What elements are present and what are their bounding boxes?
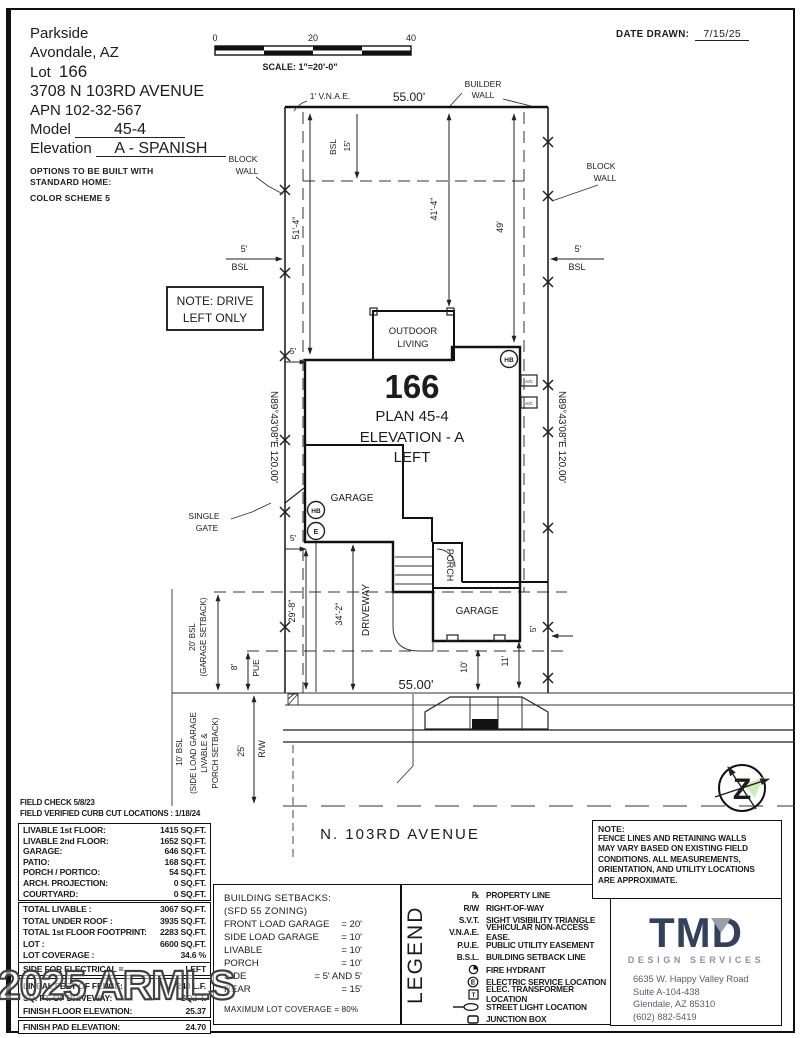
table-row: PORCH / PORTICO:54 SQ.FT. (23, 867, 206, 878)
setback-row: PORCH= 10' (224, 957, 390, 970)
lot-number: 166 (59, 62, 87, 81)
garage-right-label: GARAGE (456, 606, 499, 617)
setback-row: REAR= 15' (224, 983, 390, 996)
drive-note-line2: LEFT ONLY (183, 311, 247, 325)
row-value: 1415 SQ.FT. (160, 825, 206, 836)
table-row: LOT :6600 SQ.FT. (23, 939, 206, 951)
single-gate-label: SINGLE (188, 511, 220, 521)
legend-label: PROPERTY LINE (486, 890, 550, 900)
bsl-5ft-right: 5' (575, 244, 582, 254)
dim-34-2: 34'-2" (334, 603, 344, 626)
row-value: 3067 SQ.FT. (160, 904, 206, 916)
legend-sym: P.U.E. (433, 940, 479, 950)
legend-item: T ELEC. TRANSFORMER LOCATION (433, 988, 608, 1000)
model-value: 45-4 (75, 122, 185, 138)
setback-label: FRONT LOAD GARAGE (224, 918, 329, 931)
row-label: GARAGE: (23, 846, 62, 857)
general-note-box: NOTE: FENCE LINES AND RETAINING WALLS MA… (592, 820, 782, 899)
row-label: LOT COVERAGE : (23, 950, 94, 962)
row-value: 2283 SQ.FT. (160, 927, 206, 939)
fire-hydrant-icon (433, 964, 479, 975)
legend-sym: B.S.L. (433, 952, 479, 962)
row-value: 1652 SQ.FT. (160, 836, 206, 847)
table-row: PATIO:168 SQ.FT. (23, 857, 206, 868)
legend-sym: V.N.A.E. (433, 927, 479, 937)
block-wall-right-label: BLOCK (587, 161, 616, 171)
side-setback-label: LIVABLE & (200, 733, 209, 773)
legend-sym: S.V.T. (433, 915, 479, 925)
building-setbacks-box: BUILDING SETBACKS: (SFD 55 ZONING) FRONT… (213, 884, 401, 1025)
row-label: ARCH. PROJECTION: (23, 878, 108, 889)
date-drawn-label: DATE DRAWN: (616, 29, 689, 40)
table-row: TOTAL 1st FLOOR FOOTPRINT:2283 SQ.FT. (23, 927, 206, 939)
dim-11ft: 11' (500, 655, 510, 666)
row-value: 0 SQ.FT. (174, 889, 206, 900)
dim-49: 49' (495, 221, 505, 233)
driveway-label: DRIVEWAY (361, 584, 372, 637)
transformer-icon: T (433, 989, 479, 1000)
setback-row: LIVABLE= 10' (224, 944, 390, 957)
garage-setback-label: (GARAGE SETBACK) (199, 597, 208, 676)
note-line: ARE APPROXIMATE. (598, 876, 776, 886)
bearing-right: N89°43'08"E 120.00' (556, 391, 567, 483)
dim-10ft: 10' (459, 661, 469, 673)
legend-item: STREET LIGHT LOCATION (433, 1001, 608, 1013)
legend-item: ℞PROPERTY LINE (433, 889, 608, 901)
elevation-label: Elevation (30, 140, 92, 157)
tmd-logo: TMD (649, 913, 743, 953)
legend-label: PUBLIC UTILITY EASEMENT (486, 940, 594, 950)
elevation-name: ELEVATION - A (360, 429, 464, 446)
dim-29-8: 29'-8" (287, 600, 297, 623)
dim-5ft-house: 5' (290, 346, 297, 356)
electric-service-icon: E (433, 976, 479, 988)
north-arrow-icon: Z (715, 765, 769, 811)
row-value: 6600 SQ.FT. (160, 939, 206, 951)
legend-sym: R/W (433, 903, 479, 913)
legend-item: P.U.E.PUBLIC UTILITY EASEMENT (433, 939, 608, 951)
legend-box: LEGEND ℞PROPERTY LINE R/WRIGHT-OF-WAY S.… (400, 884, 611, 1025)
pue-dim: 8' (229, 663, 239, 670)
electric-service-icon: E (314, 529, 319, 536)
legend-item: R/WRIGHT-OF-WAY (433, 901, 608, 913)
block-wall-left-label: BLOCK (229, 154, 258, 164)
pue-label: PUE (251, 659, 261, 677)
setback-value: = 15' (341, 983, 362, 996)
legend-title: LEGEND (401, 885, 430, 1024)
row-label: LOT : (23, 939, 44, 951)
outdoor-living-label: LIVING (397, 339, 428, 350)
street-light-icon (433, 1001, 479, 1012)
note-line: FENCE LINES AND RETAINING WALLS (598, 834, 776, 844)
row-label: COURTYARD: (23, 889, 78, 900)
legend-label: FIRE HYDRANT (486, 965, 545, 975)
elevation-side: LEFT (394, 449, 431, 466)
note-line: MAY VARY BASED ON EXISTING FIELD (598, 844, 776, 854)
curb-cut-leader (397, 694, 413, 783)
porch-label: PORCH (445, 549, 455, 582)
row-value: 3935 SQ.FT. (160, 916, 206, 928)
dim-51-4: 51'-4" (291, 217, 301, 240)
setback-value: = 10' (341, 931, 362, 944)
legend-label: BUILDING SETBACK LINE (486, 952, 586, 962)
date-drawn-value: 7/15/25 (695, 28, 749, 41)
dim-5ft-drive: 5' (290, 533, 297, 543)
row-label: PATIO: (23, 857, 50, 868)
table-row: GARAGE:646 SQ.FT. (23, 846, 206, 857)
table-row: ARCH. PROJECTION:0 SQ.FT. (23, 878, 206, 889)
entry-steps (395, 557, 432, 584)
dim-15ft: 15' (342, 140, 352, 151)
setback-value: = 10' (341, 944, 362, 957)
garage-setback-label: 20' BSL (188, 623, 197, 651)
side-setback-label: 10' BSL (175, 738, 184, 766)
lot-width-top-dim: 55.00' (393, 90, 425, 104)
row-label: FINISH PAD ELEVATION: (23, 1022, 120, 1032)
rw-dim: 25' (236, 745, 246, 757)
legend-label: STREET LIGHT LOCATION (486, 1002, 587, 1012)
plan-name: PLAN 45-4 (375, 408, 448, 425)
model-label: Model (30, 121, 71, 138)
setback-value: = 10' (341, 957, 362, 970)
firm-suite: Suite A-104-438 (633, 986, 781, 999)
garage-left-label: GARAGE (331, 493, 374, 504)
row-label: TOTAL 1st FLOOR FOOTPRINT: (23, 927, 147, 939)
side-setback-label: (SIDE LOAD GARAGE (189, 712, 198, 794)
drive-note-line1: NOTE: DRIVE (177, 294, 254, 308)
table-row: COURTYARD:0 SQ.FT. (23, 889, 206, 900)
pad-elevation-row: FINISH PAD ELEVATION:24.70 (18, 1020, 211, 1034)
firm-tagline: DESIGN SERVICES (611, 955, 781, 965)
block-wall-left-label: WALL (236, 166, 259, 176)
row-value: 168 SQ.FT. (165, 857, 206, 868)
row-value: 54 SQ.FT. (169, 867, 206, 878)
lot-width-bottom-dim: 55.00' (398, 677, 433, 692)
single-gate-label: GATE (196, 523, 219, 533)
design-firm-block: TMD DESIGN SERVICES 6635 W. Happy Valley… (610, 898, 782, 1026)
table-row: TOTAL LIVABLE :3067 SQ.FT. (23, 904, 206, 916)
north-arrow-letter: Z (733, 773, 751, 806)
bsl-right-label: BSL (568, 262, 585, 272)
max-lot-coverage: MAXIMUM LOT COVERAGE = 80% (224, 1005, 390, 1014)
city-state: Avondale, AZ (30, 43, 226, 62)
row-label: PORCH / PORTICO: (23, 867, 100, 878)
legend-label: JUNCTION BOX (486, 1014, 546, 1024)
row-label: LIVABLE 2nd FLOOR: (23, 836, 109, 847)
tmd-logo-triangle-icon (711, 918, 731, 933)
rw-label: R/W (257, 740, 267, 758)
armls-watermark: 2025 ARMLS (0, 962, 235, 1009)
legend-item: V.N.A.E.VEHICULAR NON-ACCESS EASE. (433, 926, 608, 938)
firm-phone: (602) 882-5419 (633, 1011, 781, 1024)
scale-bar: 0 20 40 SCALE: 1"=20'-0" (212, 33, 416, 72)
field-check-note: FIELD CHECK 5/8/23 (20, 798, 200, 809)
field-verified-note: FIELD VERIFIED CURB CUT LOCATIONS : 1/18… (20, 809, 200, 820)
legend-item: B.S.L.BUILDING SETBACK LINE (433, 951, 608, 963)
row-value: 34.6 % (180, 950, 206, 962)
site-address: 3708 N 103RD AVENUE (30, 82, 226, 101)
dim-5ft-garage: 5' (528, 625, 538, 632)
svg-text:E: E (471, 980, 476, 987)
scale-tick-40: 40 (406, 33, 416, 43)
row-value: 24.70 (185, 1022, 206, 1032)
block-wall-right-label: WALL (594, 173, 617, 183)
outdoor-living-label: OUTDOOR (389, 326, 438, 337)
setback-row: SIDE= 5' AND 5' (224, 970, 390, 983)
note-line: ORIENTATION, AND UTILITY LOCATIONS (598, 865, 776, 875)
legend-label: RIGHT-OF-WAY (486, 903, 544, 913)
builder-wall-label: BUILDER (465, 79, 502, 89)
svg-text:T: T (472, 993, 476, 999)
table-row: LIVABLE 2nd FLOOR:1652 SQ.FT. (23, 836, 206, 847)
totals-table: TOTAL LIVABLE :3067 SQ.FT. TOTAL UNDER R… (18, 902, 211, 963)
setback-value: = 20' (341, 918, 362, 931)
vnae-label: 1' V.N.A.E. (310, 91, 351, 101)
community-name: Parkside (30, 24, 226, 43)
ac-unit-icon: A/C (525, 379, 533, 384)
scale-label: SCALE: 1"=20'-0" (263, 62, 338, 72)
setback-row: SIDE LOAD GARAGE= 10' (224, 931, 390, 944)
lot-number: 166 (384, 368, 439, 405)
options-note: OPTIONS TO BE BUILT WITH (30, 166, 226, 177)
curb-cut-marker (472, 719, 498, 729)
bearing-left: N89°43'08"E 120.00' (268, 391, 279, 483)
setback-row: FRONT LOAD GARAGE= 20' (224, 918, 390, 931)
row-label: TOTAL UNDER ROOF : (23, 916, 113, 928)
date-drawn: DATE DRAWN:7/15/25 (616, 28, 749, 40)
row-label: LIVABLE 1st FLOOR: (23, 825, 106, 836)
dim-41-4: 41'-4" (429, 198, 439, 221)
property-line-symbol: ℞ (433, 890, 479, 900)
row-label: TOTAL LIVABLE : (23, 904, 91, 916)
setback-value: = 5' AND 5' (314, 970, 362, 983)
table-row: TOTAL UNDER ROOF :3935 SQ.FT. (23, 916, 206, 928)
side-setback-label: PORCH SETBACK) (211, 717, 220, 788)
builder-wall-label: WALL (472, 90, 495, 100)
bsl-left-label: BSL (231, 262, 248, 272)
area-table: LIVABLE 1st FLOOR:1415 SQ.FT. LIVABLE 2n… (18, 823, 211, 901)
setback-label: SIDE LOAD GARAGE (224, 931, 319, 944)
firm-address: 6635 W. Happy Valley Road (633, 973, 781, 986)
hose-bib-icon: HB (311, 508, 321, 515)
elevation-value: A - SPANISH (96, 141, 226, 157)
site-plan-sheet: { "header": { "community": "Parkside", "… (0, 0, 800, 1038)
lot-label: Lot (30, 64, 51, 81)
scale-tick-20: 20 (308, 33, 318, 43)
table-row: LIVABLE 1st FLOOR:1415 SQ.FT. (23, 825, 206, 836)
row-value: 646 SQ.FT. (165, 846, 206, 857)
legend-item: FIRE HYDRANT (433, 963, 608, 975)
bsl-label-top: BSL (328, 139, 338, 155)
row-value: 0 SQ.FT. (174, 878, 206, 889)
note-title: NOTE: (598, 824, 776, 834)
bsl-5ft-left: 5' (241, 244, 248, 254)
setbacks-title: BUILDING SETBACKS: (224, 892, 390, 905)
street-name: N. 103RD AVENUE (320, 826, 480, 843)
note-line: CONDITIONS. ALL MEASUREMENTS, (598, 855, 776, 865)
junction-box-icon (433, 1014, 479, 1024)
ac-unit-icon: A/C (525, 401, 533, 406)
setbacks-subtitle: (SFD 55 ZONING) (224, 905, 390, 918)
setback-label: LIVABLE (224, 944, 262, 957)
junction-box-symbol (288, 694, 298, 705)
hose-bib-icon: HB (504, 357, 514, 364)
options-note: STANDARD HOME: (30, 177, 226, 188)
table-row: LOT COVERAGE :34.6 % (23, 950, 206, 962)
firm-city: Glendale, AZ 85310 (633, 998, 781, 1011)
single-gate-symbol (285, 488, 304, 503)
legend-item: JUNCTION BOX (433, 1013, 608, 1025)
color-scheme: COLOR SCHEME 5 (30, 193, 226, 204)
apn: APN 102-32-567 (30, 101, 226, 120)
title-block: Parkside Avondale, AZ Lot166 3708 N 103R… (30, 24, 226, 204)
